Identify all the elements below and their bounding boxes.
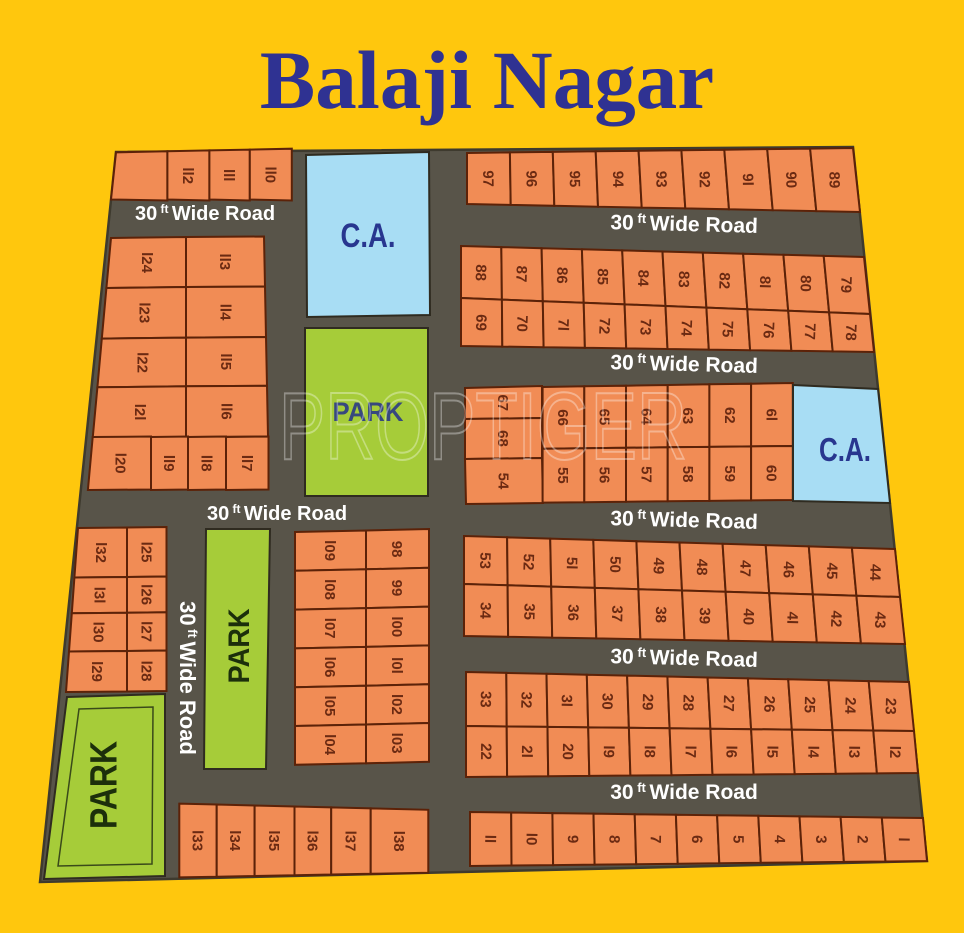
svg-text:l23: l23 <box>136 302 153 323</box>
svg-text:94: 94 <box>609 171 626 189</box>
svg-text:l34: l34 <box>226 830 243 852</box>
svg-text:93: 93 <box>652 171 669 188</box>
svg-text:22: 22 <box>477 743 494 760</box>
svg-text:26: 26 <box>760 696 777 713</box>
svg-text:l09: l09 <box>321 540 338 561</box>
svg-text:3l: 3l <box>558 694 575 707</box>
svg-text:47: 47 <box>736 560 753 577</box>
svg-text:84: 84 <box>634 269 651 287</box>
svg-text:PARK: PARK <box>223 608 256 683</box>
svg-text:28: 28 <box>679 694 696 711</box>
svg-text:l36: l36 <box>304 830 321 851</box>
svg-text:l7: l7 <box>682 745 699 758</box>
svg-text:69: 69 <box>472 314 490 331</box>
svg-text:l38: l38 <box>390 831 407 852</box>
svg-text:9l: 9l <box>739 173 756 186</box>
svg-text:39: 39 <box>696 607 713 624</box>
svg-text:29: 29 <box>639 694 656 711</box>
svg-text:48: 48 <box>693 558 710 575</box>
svg-text:l27: l27 <box>137 621 154 642</box>
svg-text:59: 59 <box>721 465 738 482</box>
svg-text:l32: l32 <box>92 542 109 563</box>
svg-text:l3: l3 <box>845 746 862 759</box>
svg-text:99: 99 <box>388 580 405 597</box>
svg-text:2: 2 <box>854 835 871 844</box>
svg-text:75: 75 <box>718 320 736 337</box>
svg-text:34: 34 <box>476 602 494 620</box>
svg-text:l2: l2 <box>886 746 903 759</box>
svg-text:35: 35 <box>520 603 537 620</box>
svg-text:l5: l5 <box>763 745 780 758</box>
svg-text:l26: l26 <box>137 584 154 605</box>
svg-text:43: 43 <box>871 611 888 628</box>
svg-text:7l: 7l <box>554 318 571 331</box>
svg-text:80: 80 <box>796 275 813 292</box>
svg-text:l0l: l0l <box>388 657 405 674</box>
svg-text:8l: 8l <box>756 276 773 289</box>
svg-text:ll9: ll9 <box>160 455 177 472</box>
svg-text:l08: l08 <box>321 579 338 600</box>
svg-text:74: 74 <box>677 319 695 337</box>
svg-text:40: 40 <box>739 608 756 625</box>
svg-text:6: 6 <box>688 835 705 844</box>
svg-text:30 ft Wide Road: 30 ft Wide Road <box>135 202 275 225</box>
svg-text:60: 60 <box>763 465 780 482</box>
svg-text:36: 36 <box>564 604 581 621</box>
svg-text:l30: l30 <box>89 622 106 643</box>
svg-text:l20: l20 <box>111 453 128 474</box>
svg-text:98: 98 <box>388 541 405 558</box>
svg-text:lll: lll <box>220 169 237 182</box>
svg-text:ll5: ll5 <box>217 353 234 370</box>
svg-text:52: 52 <box>519 553 536 570</box>
svg-text:78: 78 <box>842 324 860 341</box>
svg-text:30: 30 <box>598 693 615 710</box>
svg-text:50: 50 <box>606 556 623 573</box>
svg-text:Balaji Nagar: Balaji Nagar <box>260 34 714 126</box>
svg-text:5: 5 <box>729 835 746 844</box>
svg-text:97: 97 <box>479 170 496 187</box>
svg-text:l6: l6 <box>722 745 739 758</box>
svg-text:l37: l37 <box>342 831 359 852</box>
svg-text:l03: l03 <box>388 733 405 754</box>
svg-text:30 ft Wide Road: 30 ft Wide Road <box>207 502 347 525</box>
svg-text:45: 45 <box>823 562 840 579</box>
svg-text:l02: l02 <box>388 694 405 715</box>
svg-text:l05: l05 <box>321 695 338 716</box>
svg-text:32: 32 <box>517 691 534 708</box>
svg-text:76: 76 <box>759 322 777 339</box>
svg-text:6l: 6l <box>763 409 780 422</box>
svg-text:2l: 2l <box>518 745 535 758</box>
svg-text:46: 46 <box>779 561 796 578</box>
svg-text:l29: l29 <box>88 661 105 682</box>
svg-text:l28: l28 <box>137 661 154 682</box>
svg-text:5l: 5l <box>563 557 580 570</box>
svg-text:l3l: l3l <box>91 587 108 604</box>
svg-text:49: 49 <box>649 557 666 574</box>
svg-text:38: 38 <box>652 606 669 623</box>
svg-text:ll: ll <box>481 835 498 844</box>
svg-text:l24: l24 <box>138 252 155 274</box>
svg-text:96: 96 <box>522 170 539 187</box>
svg-text:83: 83 <box>675 271 692 288</box>
svg-text:24: 24 <box>841 697 858 715</box>
svg-text:30 ft Wide Road: 30 ft Wide Road <box>610 506 758 534</box>
svg-text:ll2: ll2 <box>179 167 196 184</box>
svg-text:95: 95 <box>566 170 583 187</box>
svg-text:30 ft Wide Road: 30 ft Wide Road <box>610 210 758 238</box>
svg-text:25: 25 <box>801 696 818 713</box>
svg-text:37: 37 <box>608 605 625 622</box>
svg-text:73: 73 <box>636 318 654 335</box>
svg-text:7: 7 <box>647 835 664 844</box>
svg-text:82: 82 <box>715 272 732 289</box>
svg-text:42: 42 <box>827 610 844 627</box>
svg-text:ll8: ll8 <box>198 455 215 472</box>
svg-text:l35: l35 <box>265 830 282 851</box>
svg-text:PROPTIGER: PROPTIGER <box>279 373 687 480</box>
svg-text:72: 72 <box>595 317 613 334</box>
svg-text:4: 4 <box>771 835 788 844</box>
svg-text:30 ft Wide Road: 30 ft Wide Road <box>175 601 200 755</box>
svg-text:l9: l9 <box>600 745 617 758</box>
svg-text:27: 27 <box>720 695 737 712</box>
svg-text:33: 33 <box>477 691 494 708</box>
svg-text:ll7: ll7 <box>238 455 255 472</box>
svg-text:l25: l25 <box>137 542 154 563</box>
svg-text:l4: l4 <box>804 746 821 759</box>
svg-text:23: 23 <box>882 698 899 715</box>
svg-text:88: 88 <box>472 264 489 281</box>
svg-text:87: 87 <box>512 265 529 282</box>
svg-text:20: 20 <box>559 743 576 760</box>
svg-text:3: 3 <box>812 835 829 844</box>
svg-text:79: 79 <box>837 276 854 293</box>
svg-text:92: 92 <box>695 171 712 188</box>
svg-text:l2l: l2l <box>131 404 148 421</box>
svg-text:l0: l0 <box>523 833 540 846</box>
svg-text:ll3: ll3 <box>216 253 233 270</box>
svg-text:62: 62 <box>721 407 738 424</box>
svg-text:l22: l22 <box>133 352 150 373</box>
svg-text:30 ft Wide Road: 30 ft Wide Road <box>610 644 758 672</box>
svg-text:l00: l00 <box>388 616 405 637</box>
svg-text:89: 89 <box>825 171 842 188</box>
svg-text:ll6: ll6 <box>217 403 234 420</box>
svg-text:85: 85 <box>593 268 610 285</box>
svg-text:90: 90 <box>782 171 799 188</box>
svg-text:l06: l06 <box>321 657 338 678</box>
svg-text:53: 53 <box>476 552 493 569</box>
svg-text:30 ft Wide Road: 30 ft Wide Road <box>610 780 758 804</box>
svg-text:ll4: ll4 <box>216 304 233 321</box>
svg-text:PARK: PARK <box>84 741 126 829</box>
svg-text:l07: l07 <box>321 618 338 639</box>
svg-text:C.A.: C.A. <box>819 431 871 468</box>
svg-text:86: 86 <box>553 267 570 284</box>
svg-text:l: l <box>895 837 912 841</box>
svg-text:l8: l8 <box>641 745 658 758</box>
svg-text:44: 44 <box>866 564 884 582</box>
svg-text:l33: l33 <box>189 830 206 851</box>
svg-text:8: 8 <box>605 835 622 844</box>
svg-text:ll0: ll0 <box>261 166 278 183</box>
svg-text:4l: 4l <box>783 611 800 624</box>
svg-text:9: 9 <box>564 835 581 844</box>
svg-text:l04: l04 <box>321 734 338 756</box>
svg-text:77: 77 <box>801 323 819 340</box>
svg-text:70: 70 <box>513 315 531 332</box>
svg-text:C.A.: C.A. <box>341 217 396 255</box>
